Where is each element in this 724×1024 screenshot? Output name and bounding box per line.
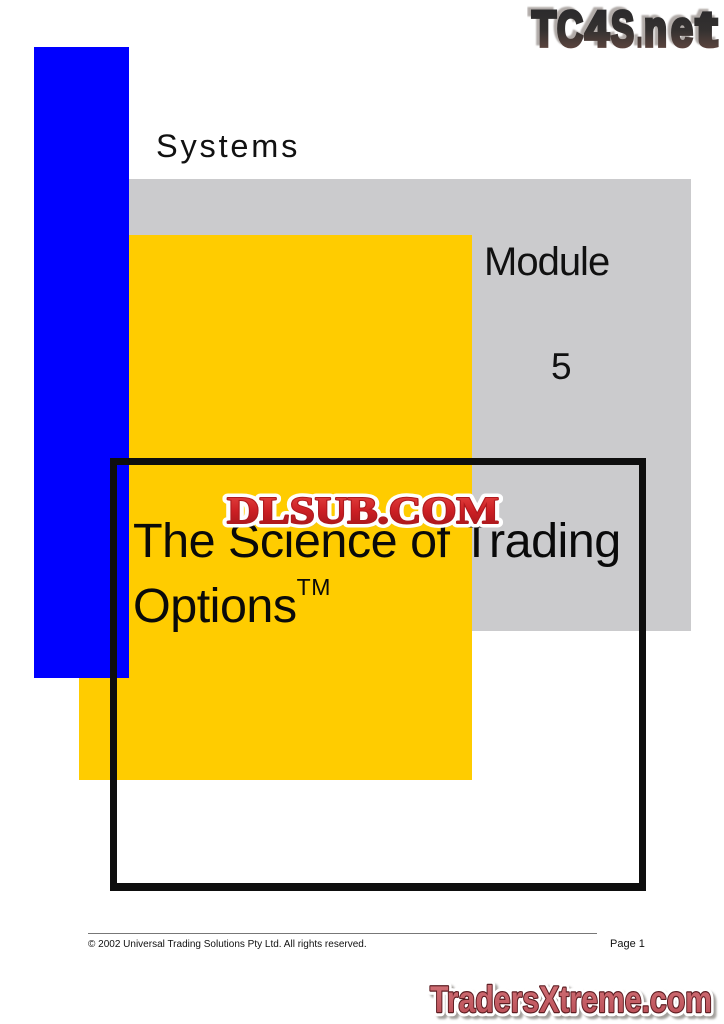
svg-text:.: .	[637, 1, 642, 55]
svg-text:n: n	[644, 1, 667, 55]
svg-text:4: 4	[585, 1, 609, 55]
svg-text:t: t	[696, 1, 717, 55]
svg-text:TradersXtreme.com: TradersXtreme.com	[430, 979, 712, 1020]
svg-text:DLSUB.COM: DLSUB.COM	[227, 490, 499, 532]
svg-text:C: C	[557, 1, 583, 55]
svg-text:T: T	[532, 1, 556, 55]
svg-text:e: e	[671, 1, 693, 55]
svg-text:S: S	[611, 1, 634, 55]
